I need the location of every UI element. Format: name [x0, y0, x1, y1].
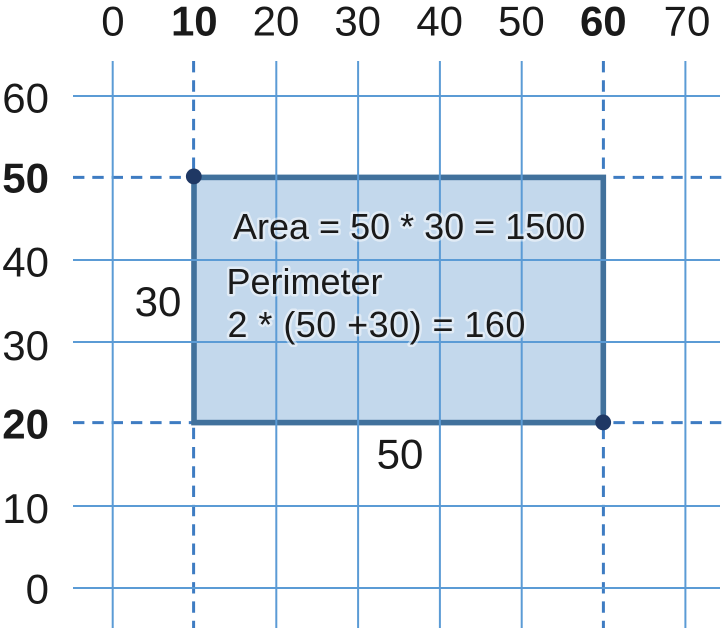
- svg-text:20: 20: [253, 0, 300, 45]
- svg-text:70: 70: [664, 0, 711, 45]
- svg-text:20: 20: [2, 400, 49, 447]
- svg-text:30: 30: [2, 322, 49, 369]
- svg-text:0: 0: [26, 565, 49, 612]
- svg-text:Perimeter: Perimeter: [227, 261, 383, 302]
- svg-text:30: 30: [135, 278, 182, 325]
- svg-text:0: 0: [101, 0, 124, 45]
- svg-text:40: 40: [416, 0, 463, 45]
- svg-text:50: 50: [2, 155, 49, 202]
- svg-text:40: 40: [2, 238, 49, 285]
- svg-text:60: 60: [580, 0, 627, 45]
- svg-text:50: 50: [498, 0, 545, 45]
- svg-text:30: 30: [334, 0, 381, 45]
- svg-text:10: 10: [171, 0, 218, 45]
- svg-text:10: 10: [2, 485, 49, 532]
- svg-text:60: 60: [2, 74, 49, 121]
- svg-text:2 * (50 +30) = 160: 2 * (50 +30) = 160: [228, 304, 526, 345]
- svg-text:50: 50: [377, 431, 424, 478]
- svg-text:Area = 50 * 30 = 1500: Area = 50 * 30 = 1500: [233, 206, 585, 247]
